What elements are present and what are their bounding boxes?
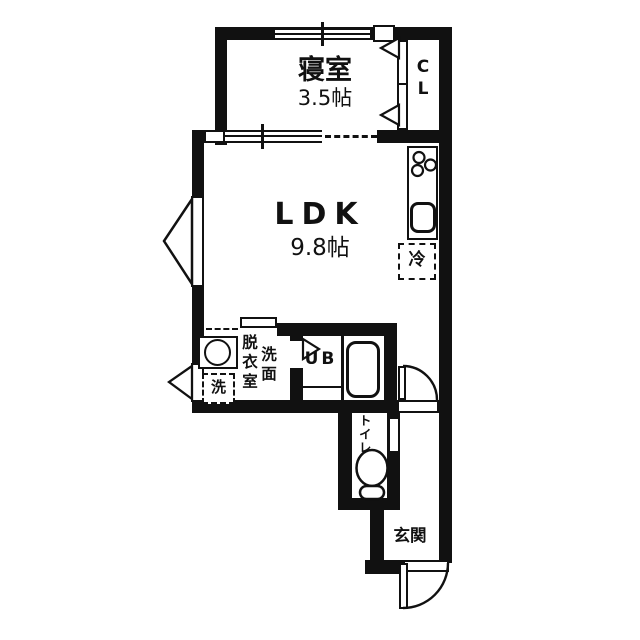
basin-label: 洗面: [259, 346, 276, 394]
dressing-doorway-dashes: [206, 328, 238, 330]
bedroom-sliding-door-mid-line: [225, 135, 322, 137]
closet-letter-l: L: [409, 78, 437, 100]
closet-label: C L: [409, 56, 437, 100]
bedroom-sliding-door-tick: [261, 124, 264, 149]
washer-label: 洗: [202, 379, 235, 396]
wall-entrance-bottom: [365, 560, 403, 574]
ldk-size: 9.8帖: [255, 236, 385, 261]
ub-lower-line: [303, 386, 341, 388]
corridor-door-leaf: [398, 366, 406, 400]
wall-bedroom-left: [215, 27, 227, 145]
dressing-sliding-door-leaf: [240, 317, 277, 328]
bedroom-size: 3.5帖: [270, 87, 380, 110]
bedroom-name: 寝室: [270, 56, 380, 86]
washbasin-bowl-icon: [204, 339, 231, 366]
corridor-doorway-threshold: [397, 400, 439, 413]
fridge-label: 冷: [398, 251, 436, 270]
bedroom-window-tick: [321, 22, 324, 46]
wall-toilet-left: [338, 413, 352, 510]
entry-threshold: [403, 560, 449, 572]
cl-bifold-door: [397, 40, 408, 130]
dressing-room-label: 脱衣室: [240, 334, 257, 408]
kitchen-sink: [410, 202, 436, 233]
bay-window-triangle-icon: [164, 199, 192, 284]
wall-right: [439, 27, 452, 563]
ldk-name: LDK: [255, 198, 385, 231]
toilet-door: [388, 417, 400, 453]
cl-bifold-door-split: [398, 83, 407, 85]
divider-open-dashes: [325, 135, 377, 138]
toilet-door-swing-dashes: [378, 455, 380, 489]
closet-letter-c: C: [409, 56, 437, 78]
toilet-label: トイレ: [357, 414, 371, 464]
ub-label: UB: [300, 350, 342, 369]
floor-plan: 寝室 3.5帖 C L LDK 9.8帖 冷 脱衣室 洗面 洗 UB トイレ 玄…: [0, 0, 640, 640]
corridor-door-arc: [403, 366, 437, 400]
divider-notch: [204, 130, 225, 143]
entrance-label: 玄関: [382, 527, 438, 545]
bedroom-small-window: [373, 25, 395, 42]
entry-door-leaf: [399, 563, 408, 609]
wall-toilet-bottom: [338, 498, 400, 510]
washroom-window-triangle-icon: [169, 366, 192, 399]
bathtub: [346, 341, 380, 398]
bay-window: [191, 196, 204, 287]
